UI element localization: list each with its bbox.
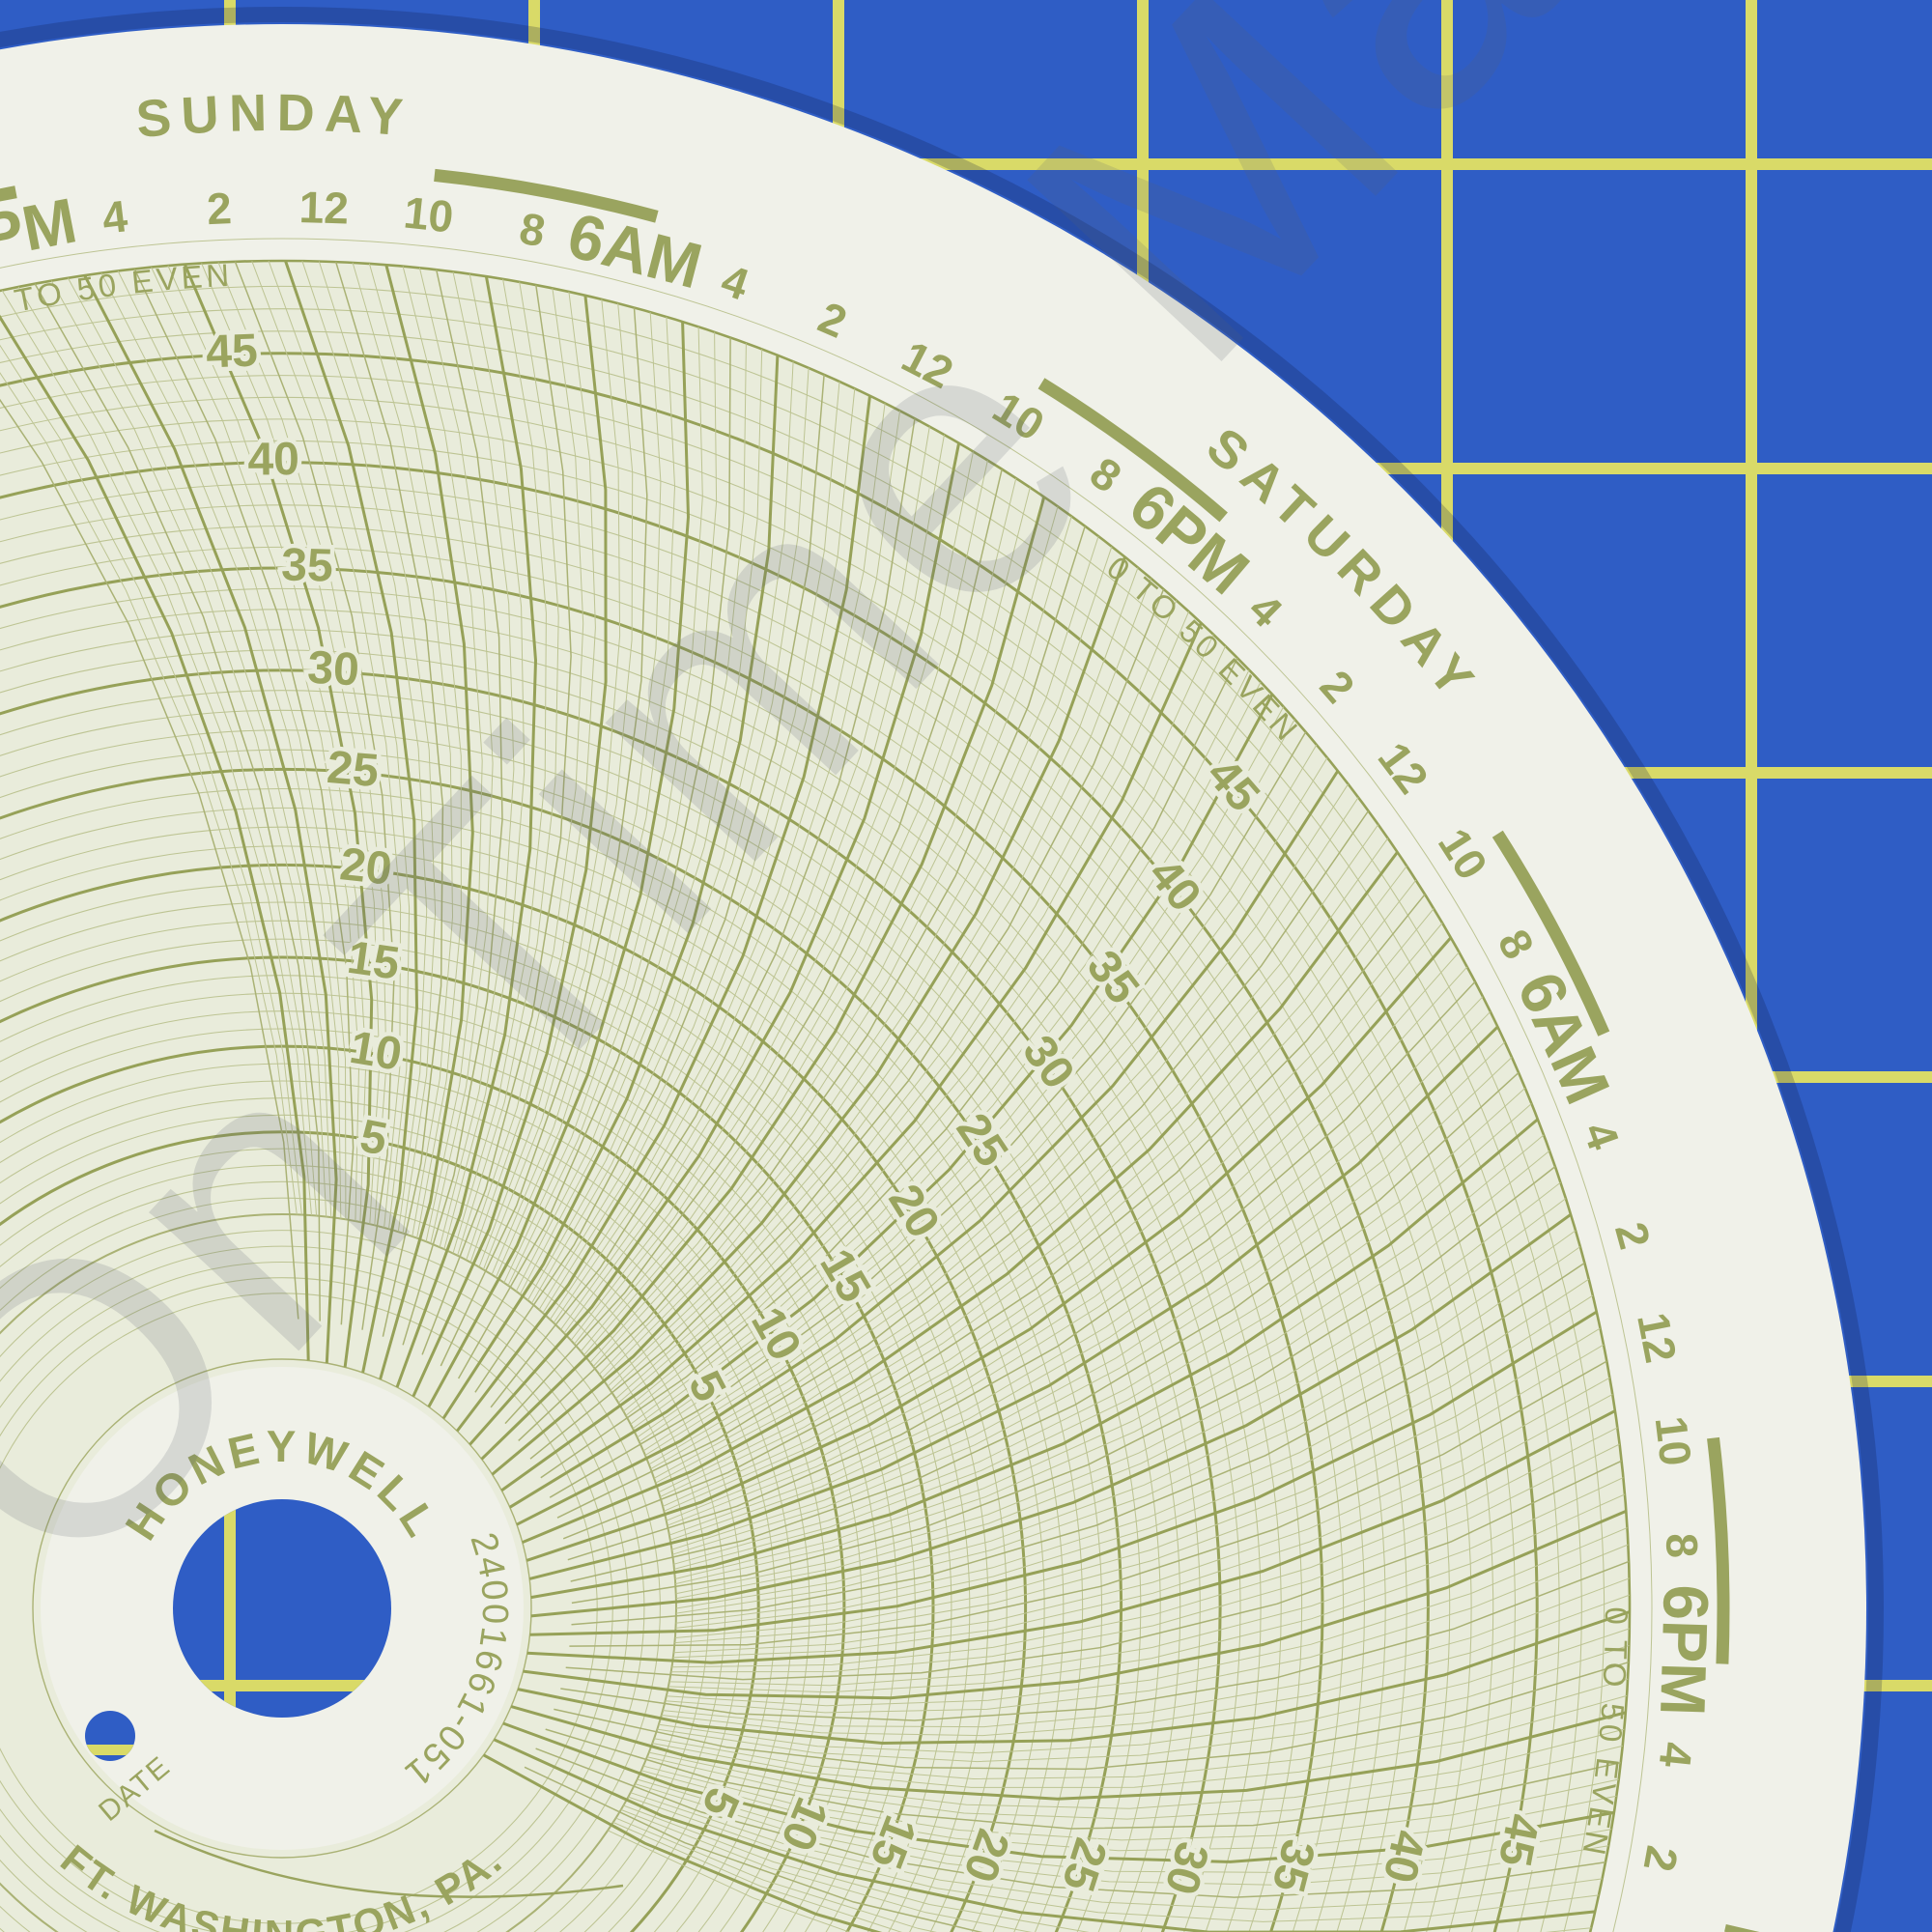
scale-value-label: 35 [281, 539, 334, 591]
locating-hole [85, 1711, 135, 1761]
scale-value-label: 40 [1373, 1826, 1434, 1888]
hour-label: 10 [1646, 1413, 1702, 1468]
hour-label: 12 [298, 182, 350, 233]
scale-value-label: 45 [1489, 1810, 1548, 1870]
scale-value-label: 30 [306, 642, 360, 696]
photo-stage: 510152025303540450 TO 50 EVEN51015202530… [0, 0, 1932, 1932]
hour-label: 2 [206, 183, 233, 234]
day-label-sunday: SUNDAY [134, 84, 414, 149]
hour-label: 8 [1657, 1532, 1708, 1559]
svg-text:SUNDAY: SUNDAY [134, 84, 414, 149]
scale-value-label: 40 [247, 434, 299, 485]
scale-value-label: 45 [205, 325, 258, 378]
hour-label: 6PM [1647, 1583, 1722, 1717]
hour-label: 10 [402, 187, 456, 242]
hour-label: 12 [1628, 1309, 1687, 1367]
